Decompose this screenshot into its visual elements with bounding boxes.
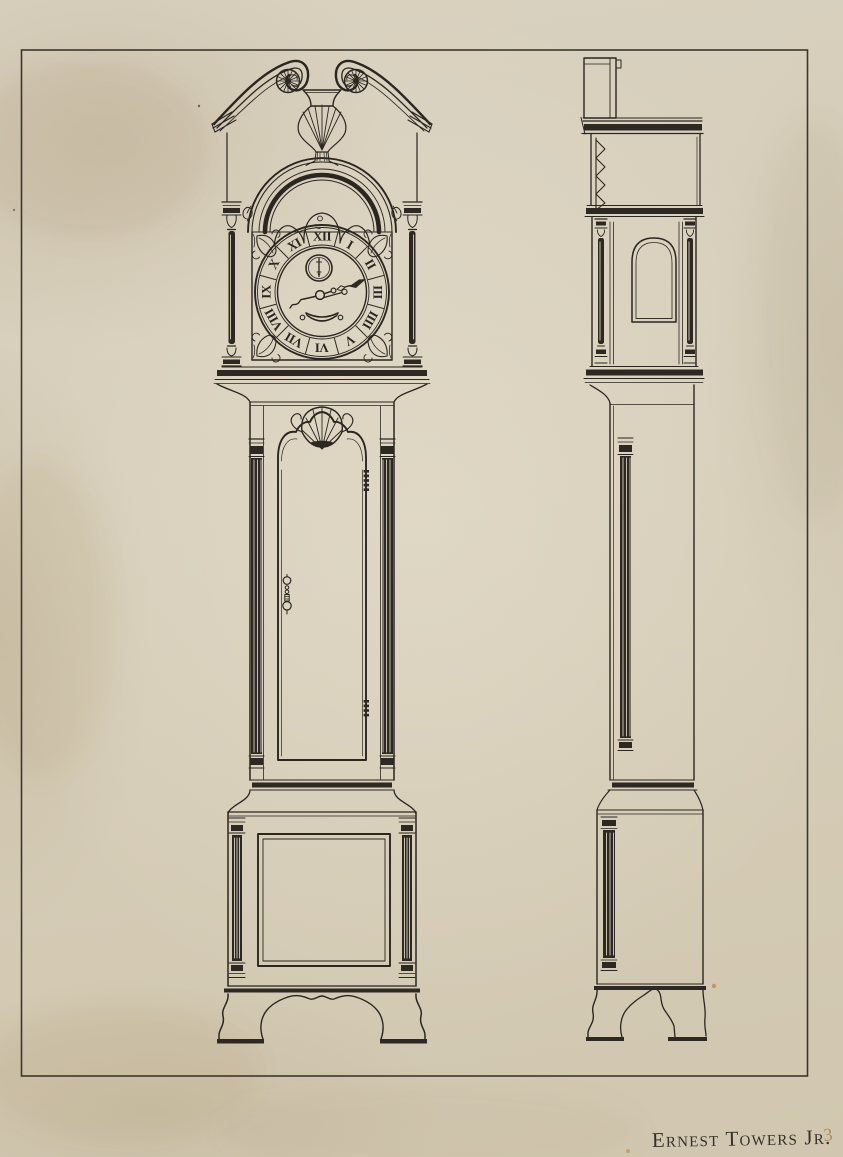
- numeral-10: X: [265, 255, 283, 271]
- numeral-9: IX: [259, 284, 274, 299]
- side-elevation: [581, 58, 707, 1041]
- hood: XII I II III IIII V VI VII VIII IX X XI: [214, 158, 430, 383]
- base-quarter-column-left: [229, 818, 245, 978]
- numeral-6: VI: [315, 341, 329, 356]
- clock-dial: XII I II III IIII V VI VII VIII IX X XI: [252, 225, 392, 362]
- hood-colonnette-right: [403, 202, 422, 366]
- waist: [217, 384, 427, 814]
- side-waist: [590, 385, 703, 810]
- side-frieze: [585, 134, 704, 217]
- side-hood: [584, 217, 704, 383]
- numeral-12: XII: [313, 229, 331, 244]
- side-bracket-feet: [586, 989, 707, 1041]
- bracket-feet: [217, 994, 427, 1044]
- waist-quarter-column-left: [249, 439, 264, 768]
- hood-colonnette-left: [222, 202, 241, 366]
- numeral-1: I: [344, 237, 356, 252]
- side-waist-quarter-column: [618, 438, 633, 751]
- seconds-dial: [306, 255, 332, 281]
- waist-door: [278, 407, 369, 760]
- waist-bottom-molding: [228, 780, 416, 814]
- side-window: [632, 238, 676, 322]
- side-scroll-board: [584, 58, 621, 118]
- side-waist-bottom-molding: [597, 780, 703, 810]
- side-base-quarter-column: [601, 817, 617, 971]
- numeral-2: II: [362, 256, 380, 272]
- tall-case-clock-drawing: XII I II III IIII V VI VII VIII IX X XI: [0, 0, 843, 1157]
- scanned-drawing-page: XII I II III IIII V VI VII VIII IX X XI: [0, 0, 843, 1157]
- scroll-profile-zigzag: [596, 138, 605, 211]
- finial-plinth: [303, 90, 341, 106]
- side-base: [586, 810, 707, 1041]
- paper-stains: [0, 60, 843, 1157]
- paper-fleck: [13, 209, 15, 211]
- numeral-3: III: [371, 285, 386, 299]
- paper-fleck: [198, 105, 200, 107]
- bracket-foot-right: [322, 994, 427, 1044]
- side-cornice: [581, 118, 703, 135]
- hood-arch-molding: [248, 158, 396, 232]
- carved-fan-ornament: [298, 105, 346, 166]
- waist-quarter-column-right: [380, 439, 395, 768]
- base: [217, 812, 427, 1044]
- base-panel: [258, 834, 390, 966]
- keyhole-escutcheon: [283, 575, 291, 615]
- side-hood-base-molding: [584, 367, 704, 383]
- calendar-aperture: [300, 313, 343, 321]
- waist-transition: [217, 384, 427, 406]
- hood-base-molding: [214, 367, 430, 384]
- artist-signature: Ernest Towers Jr.: [652, 1125, 832, 1152]
- plate-number: 3: [823, 1124, 834, 1145]
- side-colonnette-rear: [684, 219, 696, 363]
- foxing-speck: [712, 984, 716, 988]
- shell-carving: [291, 407, 353, 449]
- numeral-5: V: [341, 332, 357, 350]
- clock-hands: [290, 279, 366, 308]
- side-colonnette-front: [595, 219, 607, 363]
- base-quarter-column-right: [399, 818, 415, 978]
- front-elevation: XII I II III IIII V VI VII VIII IX X XI: [212, 61, 432, 1044]
- foxing-speck: [626, 1149, 630, 1153]
